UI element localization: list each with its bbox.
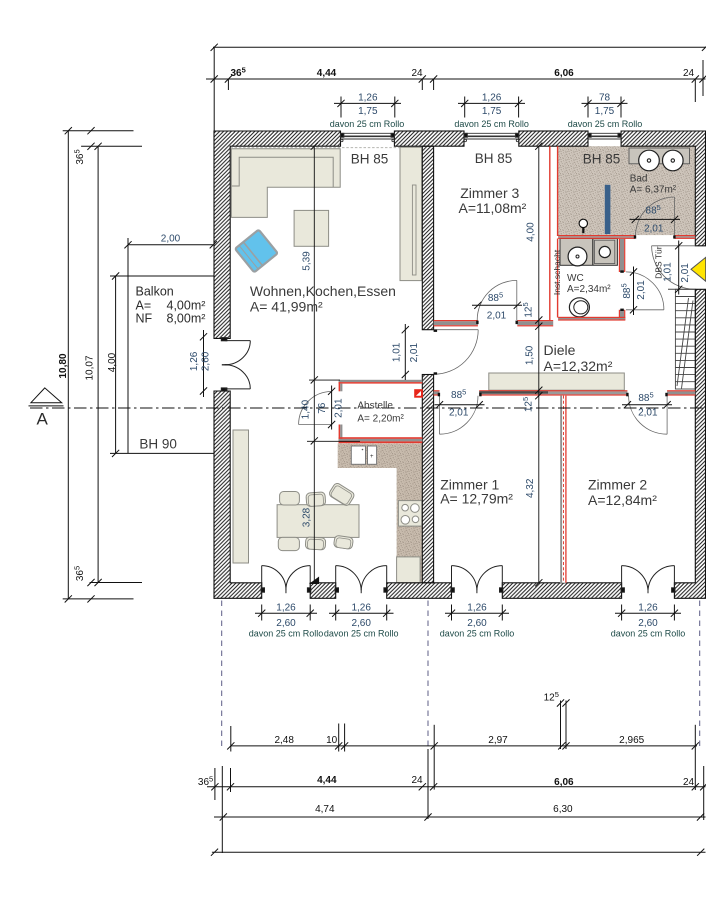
svg-text:2,01: 2,01 — [644, 224, 664, 235]
svg-text:10,80: 10,80 — [58, 353, 69, 378]
svg-text:24: 24 — [411, 775, 423, 786]
svg-text:10: 10 — [326, 735, 338, 746]
svg-text:2,48: 2,48 — [274, 735, 294, 746]
svg-text:2,97: 2,97 — [488, 735, 508, 746]
svg-text:2,01: 2,01 — [334, 398, 345, 418]
svg-text:4,44: 4,44 — [317, 775, 337, 786]
svg-text:A= 41,99m²: A= 41,99m² — [250, 298, 323, 314]
svg-text:Diele: Diele — [544, 342, 576, 358]
svg-text:1,26: 1,26 — [189, 351, 200, 371]
svg-text:A= 2,20m²: A= 2,20m² — [357, 414, 404, 425]
svg-text:Abstelle: Abstelle — [357, 401, 393, 412]
svg-text:2,60: 2,60 — [200, 351, 211, 371]
svg-text:1,26: 1,26 — [276, 602, 296, 613]
svg-text:24: 24 — [683, 68, 695, 79]
svg-text:24: 24 — [411, 68, 423, 79]
svg-text:1,75: 1,75 — [358, 106, 378, 117]
svg-text:6,06: 6,06 — [554, 68, 574, 79]
svg-text:2,00: 2,00 — [161, 234, 181, 245]
svg-text:2,01: 2,01 — [680, 263, 691, 283]
svg-text:A=12,84m²: A=12,84m² — [588, 492, 657, 508]
svg-text:2,01: 2,01 — [449, 407, 469, 418]
svg-text:Zimmer 3: Zimmer 3 — [460, 185, 519, 201]
svg-text:+: + — [370, 454, 374, 460]
svg-text:davon 25 cm Rollo: davon 25 cm Rollo — [611, 628, 686, 638]
svg-text:8,00m²: 8,00m² — [167, 312, 206, 326]
svg-text:WC: WC — [567, 273, 584, 284]
svg-text:davon 25 cm Rollo: davon 25 cm Rollo — [330, 119, 405, 129]
svg-text:4,74: 4,74 — [315, 804, 335, 815]
svg-text:A= 6,37m²: A= 6,37m² — [630, 185, 677, 196]
svg-text:1,26: 1,26 — [638, 602, 658, 613]
svg-text:1,01: 1,01 — [663, 262, 674, 282]
svg-text:2,01: 2,01 — [638, 407, 658, 418]
svg-text:A=11,08m²: A=11,08m² — [459, 200, 527, 216]
svg-text:BH 85: BH 85 — [475, 151, 513, 166]
svg-text:24: 24 — [683, 777, 695, 788]
svg-text:davon 25 cm Rollo: davon 25 cm Rollo — [324, 628, 399, 638]
svg-text:BH 85: BH 85 — [583, 152, 621, 167]
svg-text:DBS Tür: DBS Tür — [654, 246, 664, 279]
svg-text:1,26: 1,26 — [351, 602, 371, 613]
svg-text:NF: NF — [136, 312, 153, 326]
svg-text:Balkon: Balkon — [136, 285, 174, 299]
svg-text:Inst.schacht: Inst.schacht — [552, 249, 562, 295]
svg-text:1,26: 1,26 — [482, 92, 502, 103]
svg-text:BH 85: BH 85 — [351, 152, 389, 167]
svg-text:10,07: 10,07 — [85, 355, 96, 380]
svg-text:6,30: 6,30 — [553, 804, 573, 815]
svg-text:2,01: 2,01 — [409, 343, 420, 363]
svg-text:2,965: 2,965 — [619, 735, 644, 746]
svg-text:1,26: 1,26 — [358, 92, 378, 103]
svg-text:1,50: 1,50 — [524, 345, 535, 365]
svg-text:A= 12,79m²: A= 12,79m² — [440, 491, 513, 507]
svg-text:4,00: 4,00 — [525, 222, 536, 242]
svg-text:1,75: 1,75 — [595, 106, 615, 117]
svg-text:4,00m²: 4,00m² — [167, 299, 206, 313]
svg-text:A=2,34m²: A=2,34m² — [567, 284, 611, 295]
svg-text:1,75: 1,75 — [482, 106, 502, 117]
svg-text:1,01: 1,01 — [391, 342, 402, 362]
svg-text:1,40: 1,40 — [301, 399, 312, 419]
svg-text:4,44: 4,44 — [317, 68, 337, 79]
svg-text:davon 25 cm Rollo: davon 25 cm Rollo — [568, 119, 643, 129]
svg-text:1,26: 1,26 — [467, 602, 487, 613]
svg-text:Wohnen,Kochen,Essen: Wohnen,Kochen,Essen — [250, 283, 396, 299]
svg-text:Bad: Bad — [630, 173, 648, 184]
svg-text:Zimmer 2: Zimmer 2 — [588, 476, 647, 492]
svg-text:76: 76 — [317, 402, 328, 414]
svg-text:4,32: 4,32 — [525, 478, 536, 498]
svg-text:A=: A= — [136, 299, 152, 313]
svg-text:davon 25 cm Rollo: davon 25 cm Rollo — [249, 628, 324, 638]
svg-text:78: 78 — [599, 92, 611, 103]
svg-text:2,01: 2,01 — [636, 280, 647, 300]
svg-text:davon 25 cm Rollo: davon 25 cm Rollo — [454, 119, 529, 129]
svg-text:BH 90: BH 90 — [139, 436, 177, 451]
svg-text:6,06: 6,06 — [554, 777, 574, 788]
svg-text:davon 25 cm Rollo: davon 25 cm Rollo — [440, 628, 515, 638]
svg-text:3,28: 3,28 — [302, 507, 313, 527]
svg-text:A=12,32m²: A=12,32m² — [544, 358, 613, 374]
svg-text:2,01: 2,01 — [487, 311, 507, 322]
svg-text:A: A — [37, 410, 49, 429]
svg-text:5,39: 5,39 — [302, 251, 313, 271]
svg-text:4,00: 4,00 — [107, 352, 118, 372]
